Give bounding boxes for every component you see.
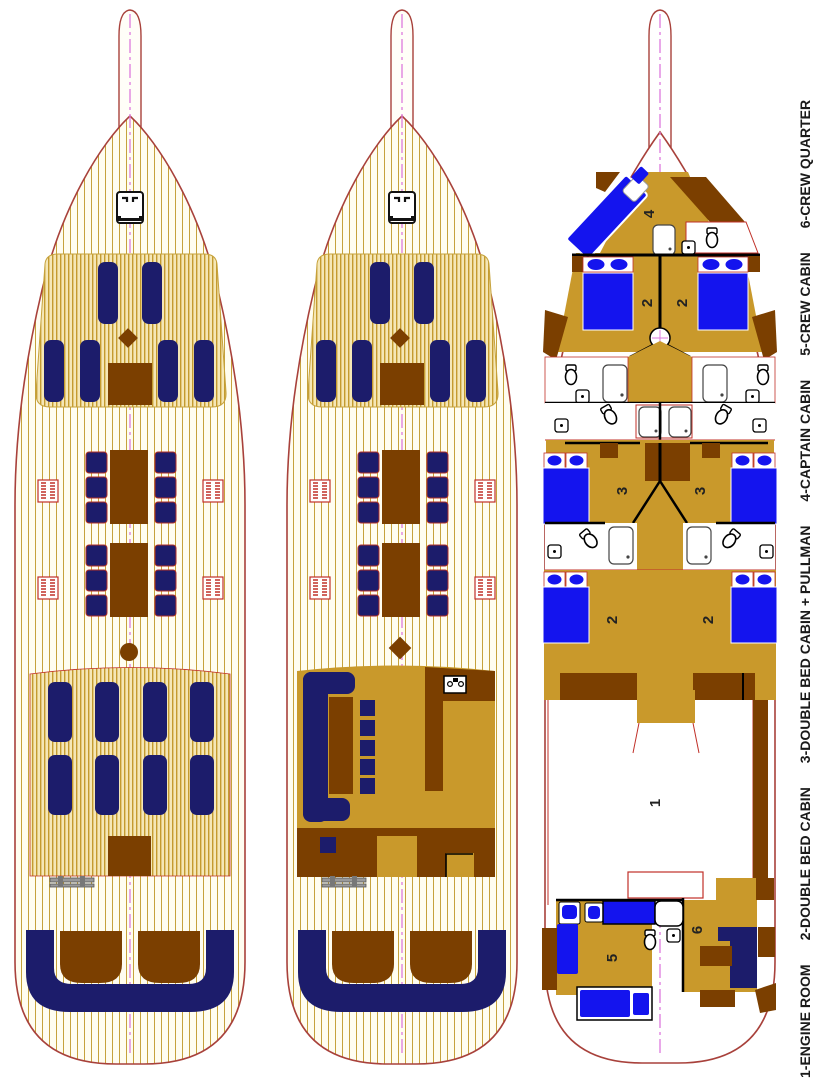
cabin-number-4: 4 <box>641 209 658 218</box>
bulkhead-cabinet <box>560 673 637 700</box>
gangway-icon <box>50 876 94 887</box>
legend-item: 3-DOUBLE BED CABIN + PULLMAN <box>797 526 813 764</box>
boat-main-deck <box>287 10 517 1064</box>
door-leaf <box>548 545 561 558</box>
engine-room-side <box>753 700 768 878</box>
boat-sun-deck <box>15 10 245 1064</box>
shower-tray <box>703 365 727 402</box>
engine-hatch-box <box>628 872 703 898</box>
wardrobe <box>600 443 618 458</box>
hull-and-common-deck <box>15 10 245 1064</box>
legend-item: 6-CREW QUARTER <box>797 100 813 228</box>
aft-counter-gap <box>377 836 417 877</box>
cabin-number-6: 6 <box>689 926 706 934</box>
crew-aft-bed <box>577 987 652 1020</box>
cabin-number-2: 2 <box>700 616 717 624</box>
crew-shower <box>655 901 683 926</box>
pillow <box>544 453 565 468</box>
door-leaf <box>576 390 589 403</box>
salon-seat-small <box>320 837 336 853</box>
aft-landing <box>716 878 756 902</box>
pillow <box>544 572 565 587</box>
cabin-number-3: 3 <box>692 487 709 495</box>
salon-stools <box>360 700 375 794</box>
door-leaf <box>682 241 695 254</box>
gangway-icon <box>322 876 366 887</box>
crew-side-cabinet <box>542 928 557 990</box>
cabin-number-3: 3 <box>614 487 631 495</box>
legend-text: 1-ENGINE ROOM2-DOUBLE BED CABIN3-DOUBLE … <box>797 100 813 1078</box>
corridor <box>637 523 683 570</box>
pillows <box>583 257 633 272</box>
pillow <box>732 453 753 468</box>
door-leaf <box>667 929 680 942</box>
cabin-number-2: 2 <box>604 616 621 624</box>
companionway-stairs <box>637 690 695 723</box>
legend: 1-ENGINE ROOM2-DOUBLE BED CABIN3-DOUBLE … <box>797 100 813 1078</box>
shower-tray <box>653 225 675 255</box>
double-bed <box>731 587 777 643</box>
double-bed <box>731 468 777 524</box>
pillow <box>732 572 753 587</box>
double-bed <box>543 587 589 643</box>
double-bed <box>543 468 589 524</box>
cabin-number-1: 1 <box>647 799 664 807</box>
pillow <box>566 453 587 468</box>
shower-tray <box>687 527 711 564</box>
mast-base-circle <box>120 643 138 661</box>
shower-tray <box>669 407 691 437</box>
aft-counter-gap <box>446 853 474 877</box>
door-leaf <box>746 390 759 403</box>
toilet-icon <box>645 930 656 950</box>
crew-berth <box>557 924 578 974</box>
toilet-icon <box>707 228 718 248</box>
bulkhead-cabinet <box>693 673 755 700</box>
door-leaf <box>555 419 568 432</box>
salon <box>297 666 495 878</box>
pillow <box>754 453 775 468</box>
crew-berth <box>603 901 655 924</box>
toilet-icon <box>758 365 769 385</box>
companionway-hatch <box>108 836 151 876</box>
sink-icon <box>444 676 466 693</box>
galley-counter-column <box>425 701 443 791</box>
cross-landing <box>544 647 776 673</box>
shower-tray <box>603 365 627 402</box>
hull-and-common-deck <box>287 10 517 1064</box>
wardrobe <box>572 256 583 272</box>
shower-tray <box>639 407 661 437</box>
toilet-icon <box>566 365 577 385</box>
salon-table <box>329 697 353 794</box>
aft-cabinet <box>756 878 774 900</box>
captain-bathroom <box>686 222 758 253</box>
pillow <box>754 572 775 587</box>
pillow <box>566 572 587 587</box>
legend-item: 1-ENGINE ROOM <box>797 964 813 1078</box>
legend-item: 2-DOUBLE BED CABIN <box>797 787 813 940</box>
cabin-number-2: 2 <box>674 299 691 307</box>
door-leaf <box>760 545 773 558</box>
legend-item: 4-CAPTAIN CABIN <box>797 380 813 502</box>
bulkhead <box>755 673 776 700</box>
legend-item: 5-CREW CABIN <box>797 252 813 355</box>
crew-pillow <box>585 903 603 922</box>
shower-tray <box>609 527 633 564</box>
center-closet <box>645 443 690 481</box>
cabin-number-2: 2 <box>639 299 656 307</box>
bulkhead <box>544 673 561 700</box>
boat-lower-deck: 4 2 2 <box>542 10 777 1063</box>
pillows <box>698 257 748 272</box>
yacht-deck-plans: 4 2 2 <box>0 0 824 1080</box>
wardrobe <box>702 443 720 458</box>
double-bed <box>583 273 633 330</box>
cabin-number-5: 5 <box>604 954 621 962</box>
deck-plan-drawing: 4 2 2 <box>0 0 824 1080</box>
double-bed <box>698 273 748 330</box>
wardrobe <box>748 256 760 272</box>
crew-pillow <box>559 902 580 924</box>
door-leaf <box>753 419 766 432</box>
